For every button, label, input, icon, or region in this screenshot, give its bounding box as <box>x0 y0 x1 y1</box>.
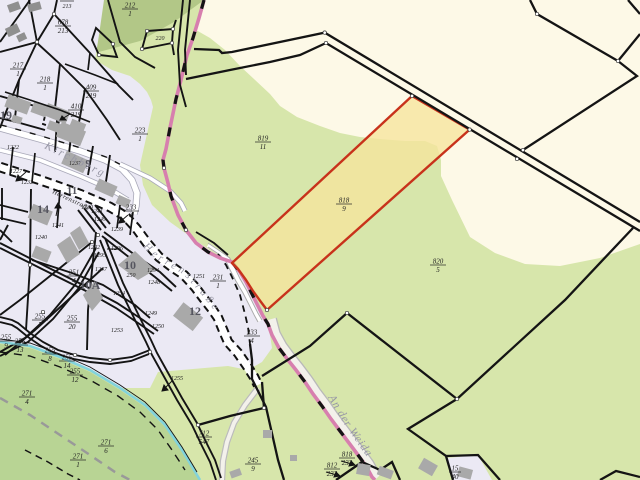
svg-text:255: 255 <box>1 334 12 342</box>
svg-text:409: 409 <box>86 84 97 92</box>
svg-text:1232: 1232 <box>21 180 33 186</box>
svg-text:219: 219 <box>86 92 97 100</box>
svg-text:7: 7 <box>38 321 42 329</box>
svg-text:8: 8 <box>48 355 52 363</box>
svg-text:212: 212 <box>125 2 136 10</box>
svg-text:231: 231 <box>213 274 224 282</box>
svg-text:271: 271 <box>73 453 84 461</box>
svg-text:220: 220 <box>156 36 165 42</box>
svg-text:255: 255 <box>62 354 73 362</box>
svg-text:218: 218 <box>40 76 51 84</box>
svg-text:10A: 10A <box>80 278 101 292</box>
svg-text:1247: 1247 <box>95 266 108 273</box>
svg-text:10: 10 <box>124 258 136 272</box>
svg-text:410: 410 <box>71 103 82 111</box>
svg-text:547: 547 <box>199 438 210 446</box>
svg-text:255: 255 <box>45 347 56 355</box>
svg-text:819: 819 <box>258 135 269 143</box>
svg-text:9: 9 <box>342 205 346 213</box>
svg-text:271: 271 <box>101 439 112 447</box>
svg-text:255: 255 <box>15 338 26 346</box>
svg-text:1295: 1295 <box>94 253 106 259</box>
svg-text:1294: 1294 <box>147 267 159 274</box>
svg-text:9: 9 <box>86 159 91 170</box>
svg-text:1250: 1250 <box>152 324 164 330</box>
svg-text:223: 223 <box>135 127 146 135</box>
svg-text:14: 14 <box>37 202 49 216</box>
svg-text:1240: 1240 <box>35 234 47 241</box>
svg-text:271: 271 <box>22 390 33 398</box>
svg-text:217: 217 <box>13 62 24 70</box>
svg-text:820: 820 <box>433 258 444 266</box>
svg-text:1249: 1249 <box>145 310 157 317</box>
svg-text:213: 213 <box>58 27 69 35</box>
svg-text:1253: 1253 <box>111 328 123 334</box>
svg-text:12: 12 <box>189 304 201 318</box>
svg-text:1227: 1227 <box>10 169 23 175</box>
svg-text:250: 250 <box>127 273 136 279</box>
svg-text:6: 6 <box>104 447 108 455</box>
svg-text:1: 1 <box>138 135 142 143</box>
svg-text:213: 213 <box>63 4 72 10</box>
svg-text:712: 712 <box>199 430 210 438</box>
svg-text:40: 40 <box>452 473 460 480</box>
svg-text:11: 11 <box>260 143 266 151</box>
svg-text:1: 1 <box>43 84 47 92</box>
svg-text:20: 20 <box>69 323 77 331</box>
svg-text:233: 233 <box>247 329 258 337</box>
svg-text:1: 1 <box>76 461 80 469</box>
svg-text:678: 678 <box>58 19 69 27</box>
svg-text:818: 818 <box>342 451 353 459</box>
svg-text:818: 818 <box>339 197 350 205</box>
svg-text:1: 1 <box>128 10 132 18</box>
svg-text:1: 1 <box>216 282 220 290</box>
svg-text:1248: 1248 <box>148 279 160 286</box>
svg-text:1: 1 <box>16 70 20 78</box>
svg-text:19: 19 <box>0 108 12 122</box>
svg-text:1242: 1242 <box>88 244 100 251</box>
svg-text:4: 4 <box>250 337 254 345</box>
svg-text:255: 255 <box>70 368 81 376</box>
svg-text:5: 5 <box>436 266 440 274</box>
svg-text:245: 245 <box>248 457 259 465</box>
svg-text:251: 251 <box>69 269 80 277</box>
svg-text:11: 11 <box>67 185 77 197</box>
svg-text:812: 812 <box>327 462 338 470</box>
svg-text:255: 255 <box>67 315 78 323</box>
svg-text:4: 4 <box>72 277 76 285</box>
svg-text:1255: 1255 <box>171 376 183 382</box>
svg-text:15: 15 <box>452 465 460 473</box>
svg-text:1254: 1254 <box>113 290 125 297</box>
svg-text:1249: 1249 <box>94 216 106 223</box>
svg-text:9: 9 <box>4 342 8 350</box>
svg-text:4: 4 <box>25 398 29 406</box>
svg-text:1241: 1241 <box>91 208 103 215</box>
svg-text:233: 233 <box>126 204 137 212</box>
svg-text:9: 9 <box>251 465 255 473</box>
svg-text:13: 13 <box>17 346 25 354</box>
svg-text:12: 12 <box>72 376 80 384</box>
